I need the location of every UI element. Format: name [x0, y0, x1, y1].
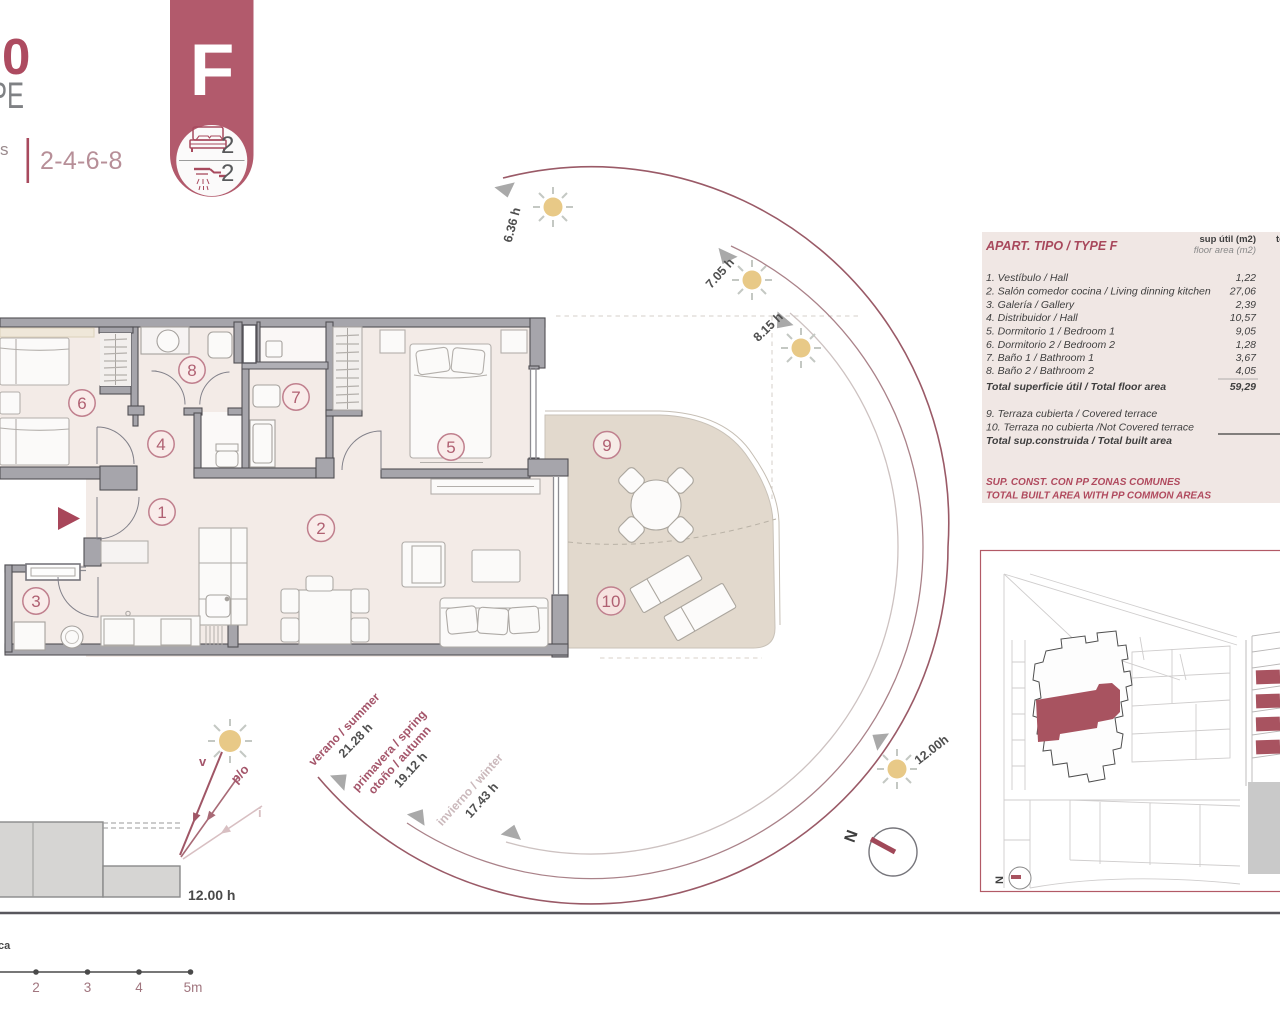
svg-text:5m: 5m [184, 980, 203, 995]
svg-text:2. Salón comedor cocina / Livi: 2. Salón comedor cocina / Living dinning… [985, 286, 1211, 298]
svg-text:3: 3 [84, 980, 92, 995]
svg-text:8. Baño 2 / Bathroom 2: 8. Baño 2 / Bathroom 2 [986, 365, 1094, 377]
svg-text:12.00 h: 12.00 h [188, 887, 235, 903]
svg-text:5. Dormitorio 1 / Bedroom 1: 5. Dormitorio 1 / Bedroom 1 [986, 326, 1115, 338]
svg-text:9. Terraza cubierta / Covered: 9. Terraza cubierta / Covered terrace [986, 408, 1157, 420]
svg-text:PE: PE [0, 75, 24, 116]
svg-text:2: 2 [221, 160, 234, 187]
svg-text:1. Vestíbulo / Hall: 1. Vestíbulo / Hall [986, 272, 1069, 284]
svg-text:4: 4 [156, 435, 165, 454]
svg-text:F: F [190, 30, 235, 111]
svg-text:4. Distribuidor / Hall: 4. Distribuidor / Hall [986, 312, 1078, 324]
svg-text:Total sup.construida / Total b: Total sup.construida / Total built area [986, 435, 1172, 447]
svg-text:59,29: 59,29 [1230, 381, 1256, 393]
svg-text:TOTAL BUILT AREA WITH PP COMMO: TOTAL BUILT AREA WITH PP COMMON AREAS [986, 491, 1211, 502]
svg-text:9,05: 9,05 [1236, 326, 1257, 338]
svg-text:9: 9 [602, 436, 611, 455]
svg-text:3,67: 3,67 [1236, 352, 1258, 364]
svg-text:5: 5 [446, 438, 455, 457]
svg-text:1,22: 1,22 [1236, 272, 1257, 284]
svg-text:3: 3 [31, 592, 40, 611]
svg-text:1,28: 1,28 [1236, 339, 1257, 351]
svg-text:SUP. CONST. CON PP ZONAS COMUN: SUP. CONST. CON PP ZONAS COMUNES [986, 477, 1181, 488]
svg-text:10. Terraza no cubierta /Not C: 10. Terraza no cubierta /Not Covered ter… [986, 422, 1194, 434]
svg-text:2: 2 [32, 980, 40, 995]
svg-text:10: 10 [602, 592, 621, 611]
svg-text:N: N [994, 876, 1006, 884]
svg-text:tot: tot [1276, 234, 1280, 245]
svg-text:floor area (m2): floor area (m2) [1194, 245, 1256, 256]
svg-text:Total superficie útil / Total: Total superficie útil / Total floor area [986, 381, 1166, 393]
svg-text:3. Galería / Gallery: 3. Galería / Gallery [986, 299, 1075, 311]
svg-text:1: 1 [157, 503, 166, 522]
svg-text:2,39: 2,39 [1235, 299, 1257, 311]
svg-text:6: 6 [77, 394, 86, 413]
svg-text:7: 7 [291, 388, 300, 407]
svg-text:7. Baño 1 / Bathroom 1: 7. Baño 1 / Bathroom 1 [986, 352, 1094, 364]
svg-text:ca: ca [0, 940, 11, 952]
svg-text:i: i [258, 805, 262, 820]
svg-text:4,05: 4,05 [1236, 365, 1257, 377]
svg-text:v: v [199, 754, 207, 769]
svg-text:s: s [0, 140, 9, 159]
svg-text:8: 8 [187, 361, 196, 380]
svg-text:2: 2 [221, 132, 234, 159]
svg-text:2-4-6-8: 2-4-6-8 [40, 147, 123, 175]
svg-text:sup útil (m2): sup útil (m2) [1200, 234, 1256, 245]
svg-text:4: 4 [135, 980, 143, 995]
svg-text:6. Dormitorio 2 / Bedroom 2: 6. Dormitorio 2 / Bedroom 2 [986, 339, 1115, 351]
svg-text:10,57: 10,57 [1230, 312, 1257, 324]
svg-text:27,06: 27,06 [1229, 286, 1256, 298]
svg-text:2: 2 [316, 519, 325, 538]
svg-text:APART. TIPO / TYPE F: APART. TIPO / TYPE F [985, 239, 1118, 253]
